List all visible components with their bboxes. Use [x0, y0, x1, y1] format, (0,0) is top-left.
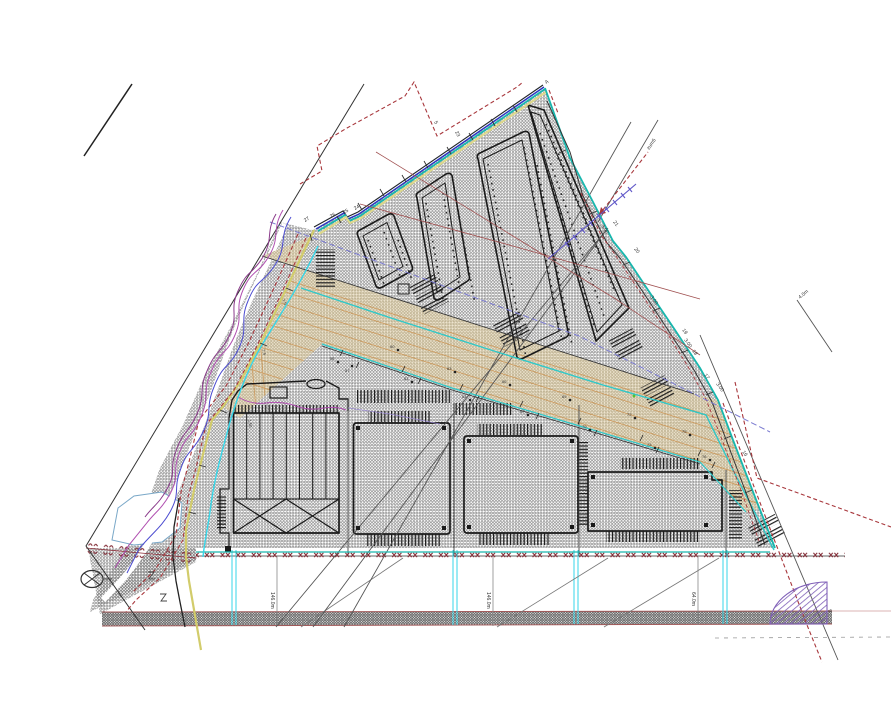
svg-text:64: 64	[462, 394, 467, 399]
svg-text:57: 57	[345, 368, 350, 373]
svg-text:75: 75	[682, 429, 687, 434]
svg-text:60: 60	[390, 344, 395, 349]
svg-text:64.0m: 64.0m	[690, 592, 696, 606]
svg-text:146.0m: 146.0m	[269, 592, 275, 609]
svg-text:66: 66	[502, 379, 507, 384]
svg-text:72: 72	[627, 412, 632, 417]
svg-text:73: 73	[647, 442, 652, 447]
svg-text:69: 69	[562, 394, 567, 399]
svg-text:67: 67	[520, 409, 525, 414]
svg-text:63: 63	[447, 366, 452, 371]
svg-text:76: 76	[702, 454, 707, 459]
svg-text:58: 58	[330, 356, 335, 361]
svg-text:61: 61	[404, 376, 409, 381]
svg-text:70: 70	[582, 424, 587, 429]
svg-text:146.0m: 146.0m	[485, 592, 491, 609]
